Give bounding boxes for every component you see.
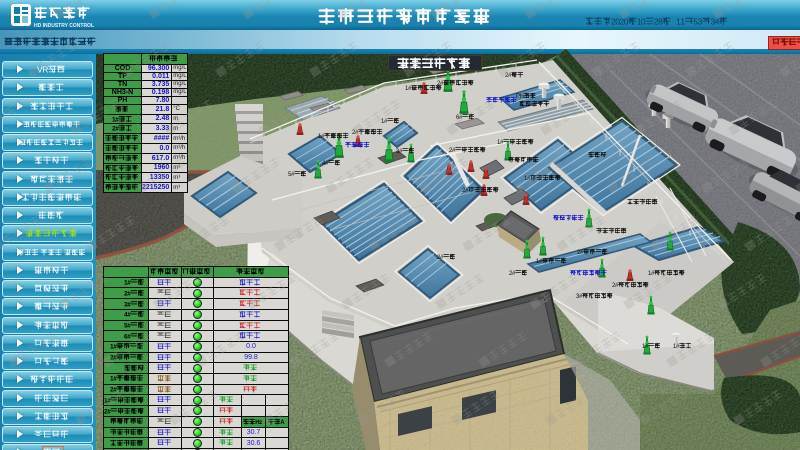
svg-text:#: # <box>127 301 131 308</box>
svg-text:z: z <box>259 420 262 425</box>
svg-text:A: A <box>280 420 285 425</box>
svg-text:#: # <box>127 333 131 340</box>
svg-text:#: # <box>127 322 131 329</box>
svg-text:#: # <box>113 344 117 351</box>
svg-text:#: # <box>127 290 131 297</box>
svg-text:#: # <box>113 354 117 361</box>
svg-text:#: # <box>127 312 131 319</box>
svg-text:#: # <box>107 408 111 415</box>
svg-text:#: # <box>113 376 117 383</box>
svg-text:#: # <box>127 280 131 287</box>
svg-text:#: # <box>107 397 111 404</box>
svg-text:#: # <box>113 387 117 394</box>
svg-text:#: # <box>115 116 119 123</box>
svg-text:#: # <box>115 126 119 133</box>
